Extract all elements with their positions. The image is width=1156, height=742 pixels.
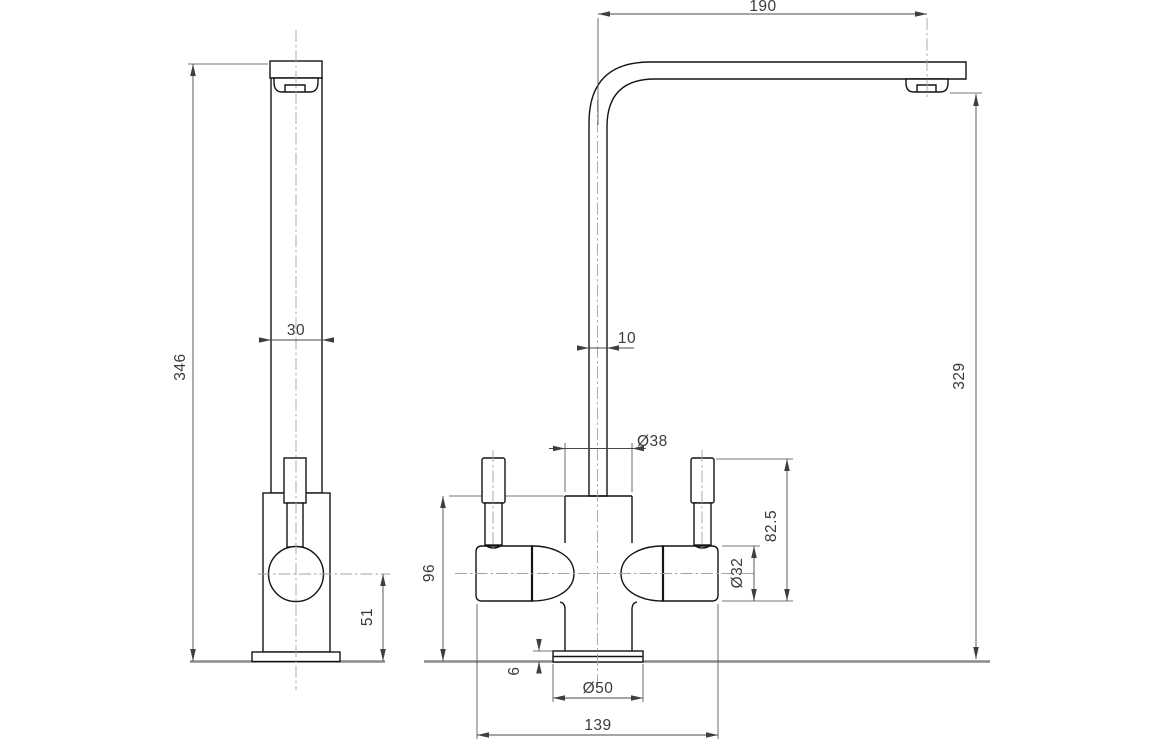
front-right-handle-lever bbox=[691, 458, 714, 503]
spout-depth-dimension-label: 30 bbox=[287, 322, 305, 339]
front-left-handle-lever bbox=[482, 458, 505, 503]
handle-center-height-dimension-label: 51 bbox=[359, 608, 376, 626]
body-height-dimension-label: 96 bbox=[421, 564, 438, 582]
overall-height-dimension-label: 346 bbox=[172, 353, 189, 380]
front-spout-outline bbox=[589, 62, 966, 496]
front-left-handle-stem bbox=[485, 503, 502, 545]
side-handle-stem bbox=[287, 503, 303, 547]
front-body-right-edge-lower bbox=[632, 602, 637, 651]
handle-top-height-dimension-label: 82.5 bbox=[763, 510, 780, 542]
flange-thickness-dimension-label: 6 bbox=[506, 666, 523, 675]
flange-diameter-dimension-label: Ø50 bbox=[583, 680, 614, 697]
spout-thickness-dimension-label: 10 bbox=[618, 330, 636, 347]
spout-outlet-height-dimension-label: 329 bbox=[951, 362, 968, 389]
front-right-handle-stem bbox=[694, 503, 711, 545]
front-view bbox=[476, 62, 966, 662]
technical-drawing-canvas: 190 346 30 51 10 Ø38 96 Ø32 bbox=[0, 0, 1156, 742]
valve-diameter-dimension-label: Ø32 bbox=[729, 558, 746, 589]
side-handle-lever bbox=[284, 458, 306, 503]
tap-drawing-svg: 190 346 30 51 10 Ø38 96 Ø32 bbox=[0, 0, 1156, 742]
front-body-left-edge-lower bbox=[560, 602, 565, 651]
body-diameter-dimension-label: Ø38 bbox=[637, 433, 668, 450]
overall-width-dimension-label: 139 bbox=[584, 717, 611, 734]
spout-reach-dimension-label: 190 bbox=[749, 0, 776, 15]
side-spout-column bbox=[271, 78, 322, 493]
